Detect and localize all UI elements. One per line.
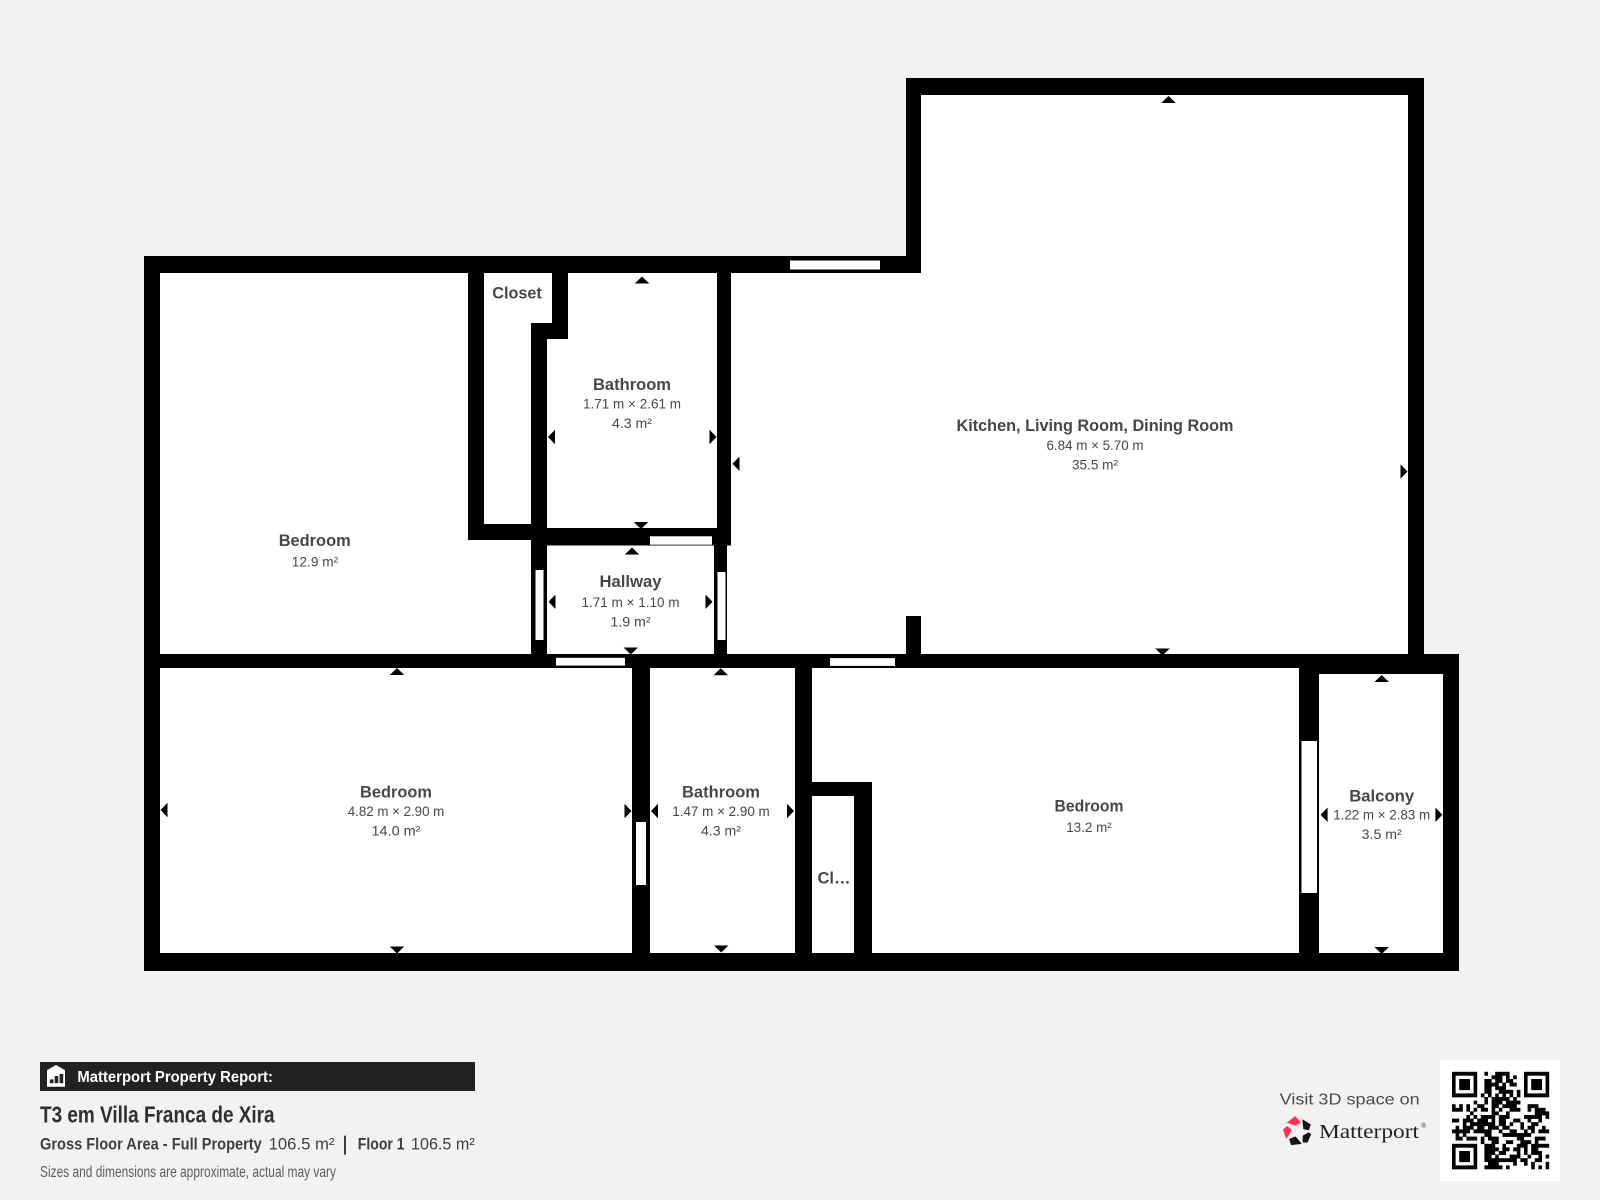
svg-text:Matterport: Matterport [1319,1121,1419,1143]
svg-text:6.84 m × 5.70 m: 6.84 m × 5.70 m [1047,437,1144,453]
svg-text:Bathroom: Bathroom [593,375,671,394]
svg-text:T3 em Villa Franca de Xira: T3 em Villa Franca de Xira [40,1102,275,1128]
svg-text:35.5 m²: 35.5 m² [1072,457,1118,473]
svg-text:12.9 m²: 12.9 m² [292,554,339,570]
svg-text:106.5 m²: 106.5 m² [411,1135,475,1154]
svg-text:Closet: Closet [492,284,542,303]
svg-text:Bathroom: Bathroom [682,783,760,802]
svg-text:1.47 m × 2.90 m: 1.47 m × 2.90 m [672,803,770,819]
svg-text:Gross Floor Area - Full Proper: Gross Floor Area - Full Property [40,1135,262,1154]
svg-text:Bedroom: Bedroom [1055,797,1124,816]
svg-text:Floor 1: Floor 1 [358,1135,405,1154]
svg-text:Kitchen, Living Room, Dining R: Kitchen, Living Room, Dining Room [957,416,1234,435]
svg-text:Balcony: Balcony [1349,787,1415,806]
svg-text:4.3 m²: 4.3 m² [701,823,741,839]
svg-text:Sizes and dimensions are appro: Sizes and dimensions are approximate, ac… [40,1164,336,1181]
svg-text:1.22 m × 2.83 m: 1.22 m × 2.83 m [1333,807,1430,823]
svg-text:3.5 m²: 3.5 m² [1362,826,1402,842]
svg-text:Cl…: Cl… [818,869,851,888]
svg-text:1.71 m × 1.10 m: 1.71 m × 1.10 m [582,594,680,610]
svg-text:Bedroom: Bedroom [279,531,351,550]
svg-text:1.71 m × 2.61 m: 1.71 m × 2.61 m [583,396,681,412]
svg-text:106.5 m²: 106.5 m² [269,1135,335,1154]
svg-text:Bedroom: Bedroom [360,783,432,802]
svg-text:4.82 m × 2.90 m: 4.82 m × 2.90 m [348,803,445,819]
svg-text:1.9 m²: 1.9 m² [610,614,651,630]
svg-text:14.0 m²: 14.0 m² [372,823,421,839]
svg-text:Matterport Property Report:: Matterport Property Report: [77,1069,273,1086]
svg-text:Hallway: Hallway [600,572,663,591]
svg-text:®: ® [1421,1122,1427,1130]
svg-text:13.2 m²: 13.2 m² [1066,819,1112,835]
svg-text:Visit 3D space on: Visit 3D space on [1280,1091,1420,1108]
svg-text:4.3 m²: 4.3 m² [612,415,652,431]
